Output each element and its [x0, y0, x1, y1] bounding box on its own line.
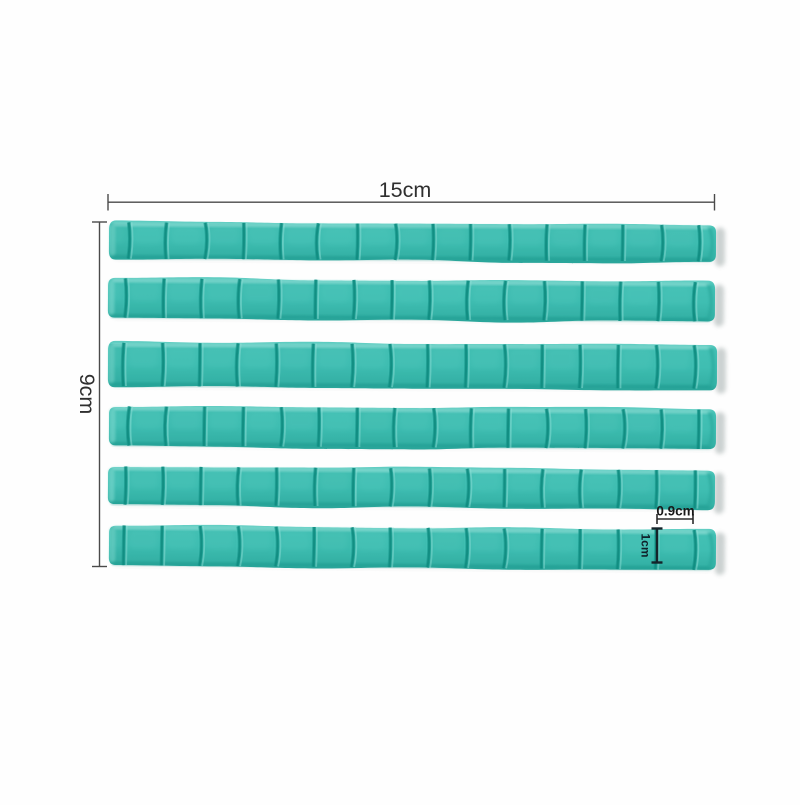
svg-text:15cm: 15cm	[379, 178, 432, 202]
svg-text:9cm: 9cm	[75, 374, 99, 415]
svg-text:0.9cm: 0.9cm	[656, 504, 694, 519]
svg-text:1cm: 1cm	[639, 533, 653, 557]
